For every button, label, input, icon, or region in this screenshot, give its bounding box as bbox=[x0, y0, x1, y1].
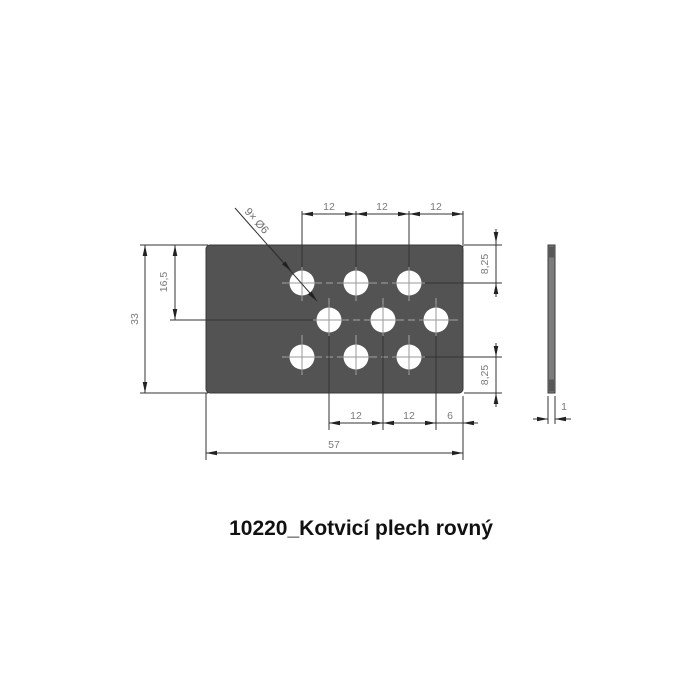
drawing-title: 10220_Kotvicí plech rovný bbox=[229, 517, 493, 540]
dimension-bottom: 12 12 6 57 bbox=[206, 410, 478, 453]
dim-mid-16-5: 16,5 bbox=[158, 272, 170, 293]
side-view: 1 bbox=[533, 245, 571, 424]
dim-right-bottom-8-25: 8,25 bbox=[479, 365, 491, 386]
dim-bottom-2: 12 bbox=[403, 410, 415, 422]
dim-bottom-1: 12 bbox=[350, 410, 362, 422]
dimension-thickness: 1 bbox=[533, 396, 571, 424]
dim-bottom-3: 6 bbox=[447, 410, 453, 422]
dimension-right: 8,25 8,25 bbox=[479, 229, 496, 407]
dim-height-33: 33 bbox=[129, 313, 141, 325]
dim-right-top-8-25: 8,25 bbox=[479, 254, 491, 275]
technical-drawing-canvas: 12 12 12 33 16,5 8,25 8,25 12 12 6 57 9×… bbox=[0, 0, 700, 700]
dimension-top: 12 12 12 bbox=[302, 201, 463, 214]
dim-top-2: 12 bbox=[376, 201, 388, 213]
dimension-left: 33 16,5 bbox=[129, 245, 175, 393]
dim-total-width-57: 57 bbox=[328, 439, 340, 451]
dim-top-1: 12 bbox=[323, 201, 335, 213]
plate-edge bbox=[548, 245, 555, 393]
dim-top-3: 12 bbox=[430, 201, 442, 213]
dim-thickness-1: 1 bbox=[561, 401, 567, 413]
